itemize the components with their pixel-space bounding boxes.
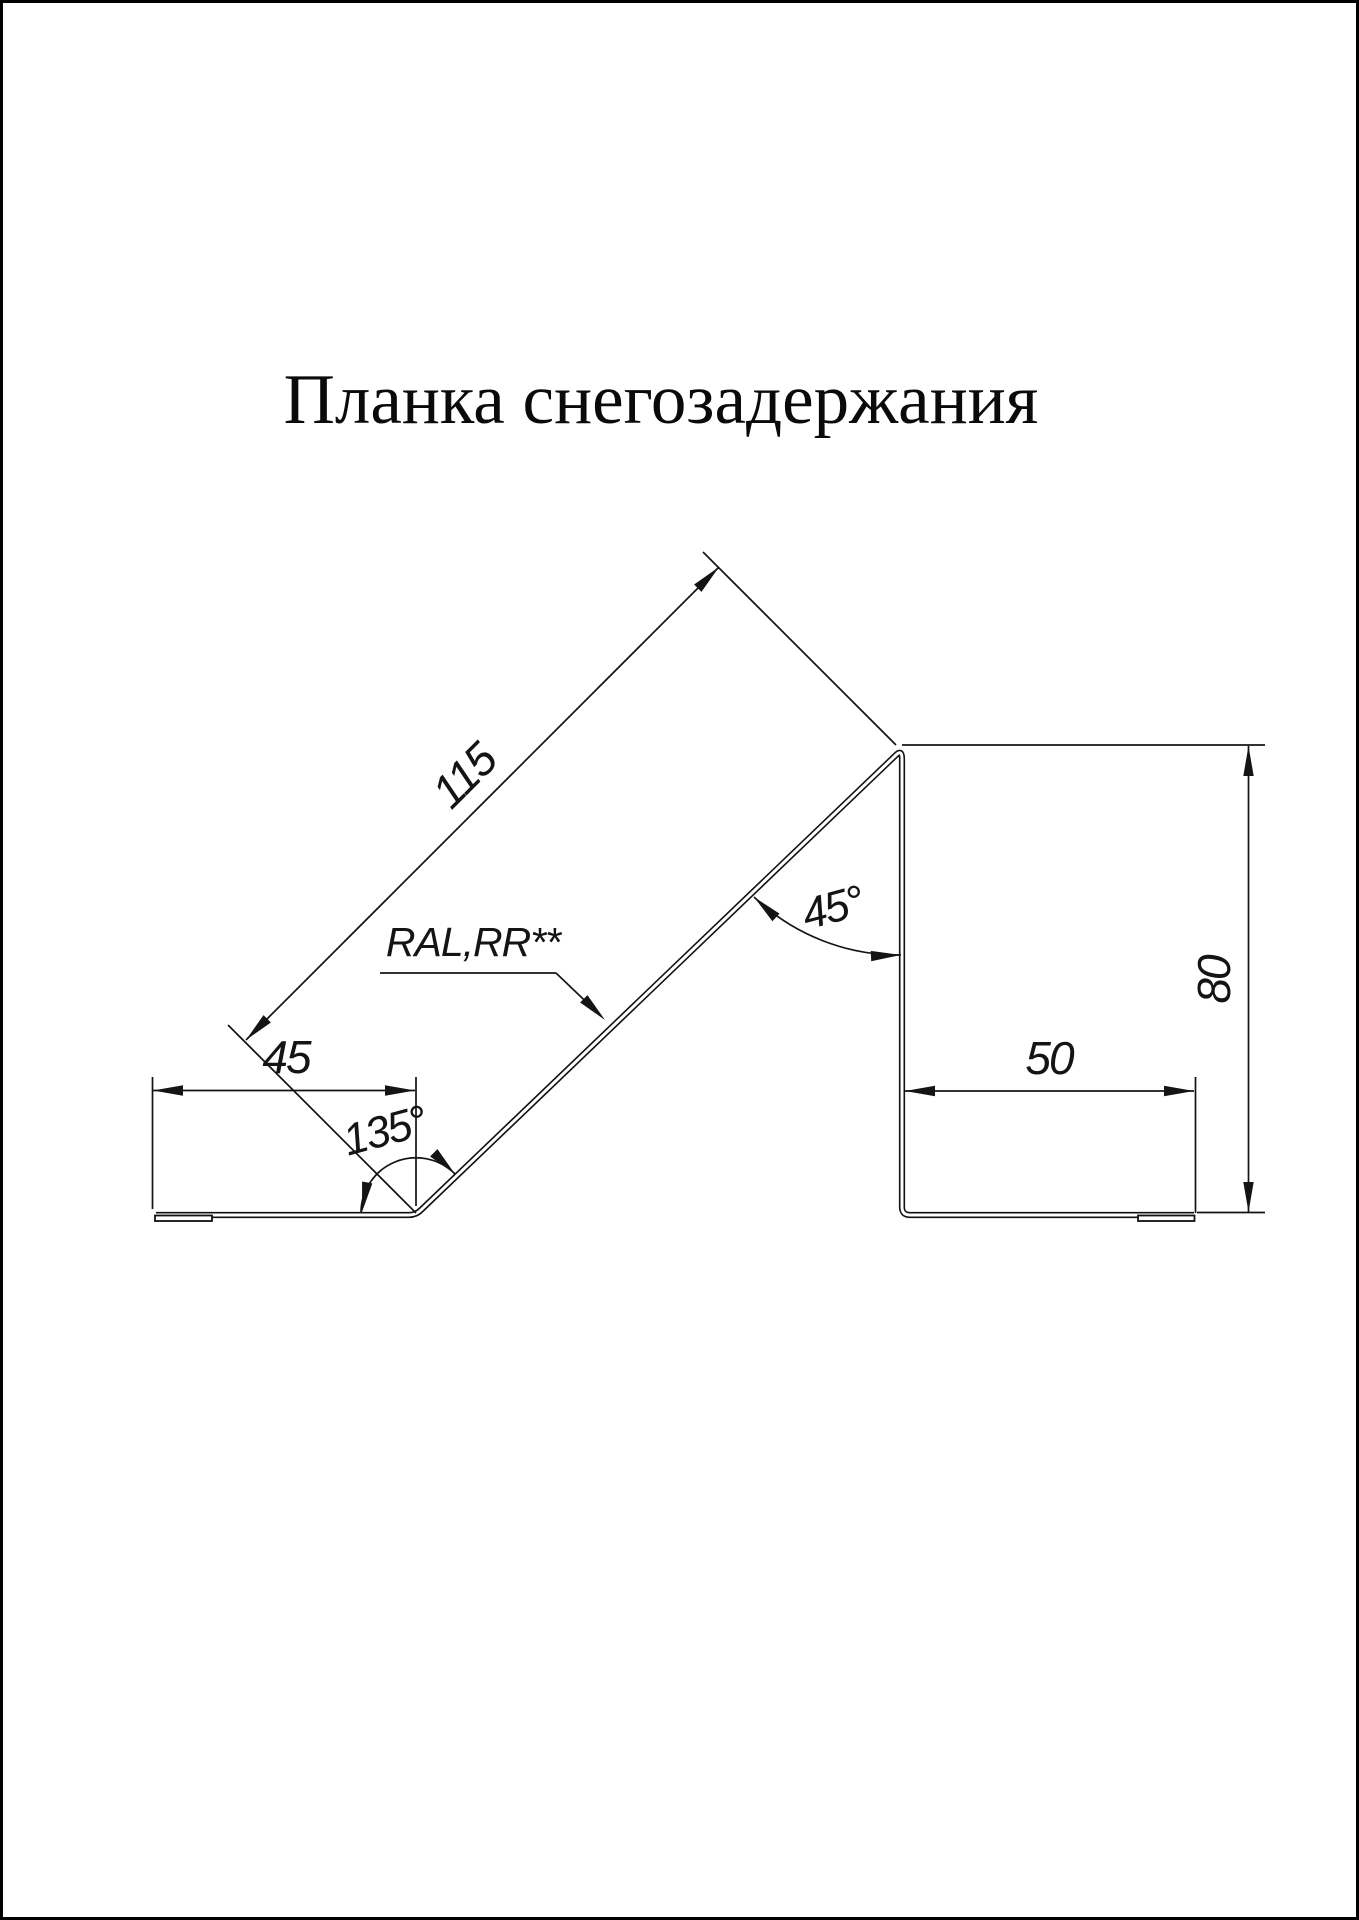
leader-arrow [580, 995, 609, 1024]
profile-inner-line [156, 753, 1194, 1215]
coating-leader-note: RAL,RR** [380, 919, 609, 1024]
dimension-slope-length: 115 [228, 552, 896, 1213]
dimension-arrow [905, 1086, 935, 1096]
dimension-label-top-angle: 45° [797, 876, 870, 939]
dimension-arrow [871, 950, 901, 961]
technical-drawing: Планка снегозадержания 45 115 [3, 3, 1359, 1920]
dimension-label-height: 80 [1188, 954, 1240, 1004]
right-hem-fold [1138, 1216, 1195, 1222]
dimension-arrow [357, 1182, 372, 1213]
dimension-label-right-flange: 50 [1025, 1032, 1075, 1084]
dimension-top-angle: 45° [750, 876, 901, 961]
dimension-right-flange: 50 [905, 1032, 1196, 1213]
dimension-line [246, 567, 719, 1040]
dimension-arrow [385, 1085, 415, 1095]
dimension-label-bottom-angle: 135° [338, 1096, 432, 1165]
dimension-arrow [1243, 1182, 1253, 1212]
dimension-height: 80 [902, 745, 1265, 1213]
dimension-arrow [1243, 746, 1253, 776]
profile-outline [155, 753, 1195, 1221]
dimension-label-slope-length: 115 [421, 732, 507, 818]
dimension-arrow [430, 1149, 459, 1178]
witness-line [703, 552, 896, 745]
dimension-arrow [694, 563, 723, 592]
dimension-arrow [1164, 1086, 1194, 1096]
drawing-page: Планка снегозадержания 45 115 [0, 0, 1359, 1920]
dimension-arrow [153, 1085, 183, 1095]
profile-outer-line [156, 753, 1194, 1215]
page-title: Планка снегозадержания [284, 361, 1039, 439]
dimension-label-left-flange: 45 [262, 1031, 312, 1083]
coating-label: RAL,RR** [386, 919, 563, 965]
left-hem-fold [155, 1216, 212, 1222]
